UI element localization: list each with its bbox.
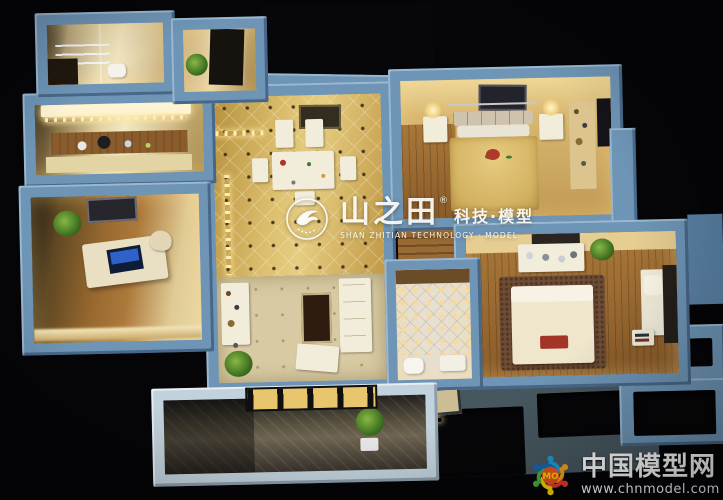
dresser — [518, 243, 585, 272]
kitchen-cabinets — [46, 154, 192, 173]
center-watermark-text: 山之田®科技·模型 SHAN ZHITIAN TECHNOLOGY · MODE… — [340, 196, 534, 240]
sofa-main — [339, 278, 373, 353]
entry-plant — [186, 53, 208, 75]
dining-chair-back-left — [275, 120, 294, 148]
toilet — [108, 63, 126, 77]
front-door — [209, 29, 245, 86]
small-bathroom-interior — [395, 269, 471, 381]
shanzhitian-bird-logo-icon — [284, 196, 330, 242]
beam-opening-2 — [633, 390, 716, 436]
lit-tile-wall — [396, 283, 472, 357]
model-photo-stage: 山之田®科技·模型 SHAN ZHITIAN TECHNOLOGY · MODE… — [0, 0, 723, 500]
side-table — [632, 329, 654, 345]
apartment-scale-model — [0, 0, 723, 500]
sofa-chaise — [295, 343, 339, 372]
nightstand-left — [423, 116, 448, 143]
bedroom-vanity — [569, 101, 597, 190]
bed2-headboard — [511, 285, 593, 303]
study-plant — [53, 210, 82, 237]
entry-room — [171, 16, 269, 104]
nightstand-right — [539, 113, 564, 140]
study-floor-glow — [34, 326, 202, 342]
bathroom-sink — [439, 355, 465, 372]
wall-light-strip-h — [215, 130, 263, 136]
bath-vanity-dark — [48, 58, 79, 85]
second-bedroom — [453, 219, 691, 390]
bathroom-top-interior — [47, 22, 164, 85]
right-beam-lower — [619, 378, 723, 446]
second-bedroom-interior — [466, 231, 679, 378]
corner-watermark-text: 中国模型网 www.chnmodel.com — [581, 454, 720, 497]
bed2-red-pillow — [540, 335, 568, 349]
wardrobe — [662, 265, 678, 343]
study-interior — [31, 194, 202, 344]
chnmodel-dancing-figures-logo-icon: MO — [527, 452, 574, 499]
tv-cabinet — [221, 283, 250, 346]
corner-watermark: MO 中国模型网 www.chnmodel.com — [527, 452, 720, 499]
kitchen-room — [22, 89, 216, 187]
entry-interior — [183, 28, 256, 92]
coffee-table — [301, 293, 332, 344]
center-watermark: 山之田®科技·模型 SHAN ZHITIAN TECHNOLOGY · MODE… — [284, 196, 534, 242]
brand-row: 山之田®科技·模型 — [340, 196, 534, 229]
study-picture — [86, 196, 137, 223]
brand-tagline: 科技·模型 — [454, 207, 534, 226]
registered-mark: ® — [439, 196, 448, 206]
svg-text:MO: MO — [542, 472, 559, 482]
site-name: 中国模型网 — [581, 454, 720, 481]
bedroom2-plant — [590, 238, 614, 261]
balcony-shadow — [163, 398, 255, 474]
dining-chair-right — [340, 156, 357, 180]
right-edge-wall — [687, 214, 723, 305]
bedroom-wall-bump — [609, 128, 637, 227]
balcony-glass-doors — [245, 385, 378, 412]
dining-chair-left — [252, 158, 269, 182]
toilet-2 — [403, 358, 423, 374]
site-url: www.chnmodel.com — [581, 482, 720, 497]
kitchen-counter — [51, 130, 187, 155]
brand-name: 山之田 — [340, 195, 439, 230]
dining-table — [272, 151, 335, 190]
small-bathroom — [384, 257, 483, 391]
balcony-planter-pot — [360, 438, 378, 451]
bathroom-top-room — [35, 10, 177, 97]
balcony-plant — [356, 408, 385, 437]
balcony — [151, 382, 439, 486]
study-room — [18, 181, 214, 355]
kitchen-interior — [35, 102, 205, 176]
dining-chair-back-right — [305, 119, 324, 147]
brand-subtitle: SHAN ZHITIAN TECHNOLOGY · MODEL — [340, 231, 534, 240]
bed2 — [511, 285, 595, 365]
